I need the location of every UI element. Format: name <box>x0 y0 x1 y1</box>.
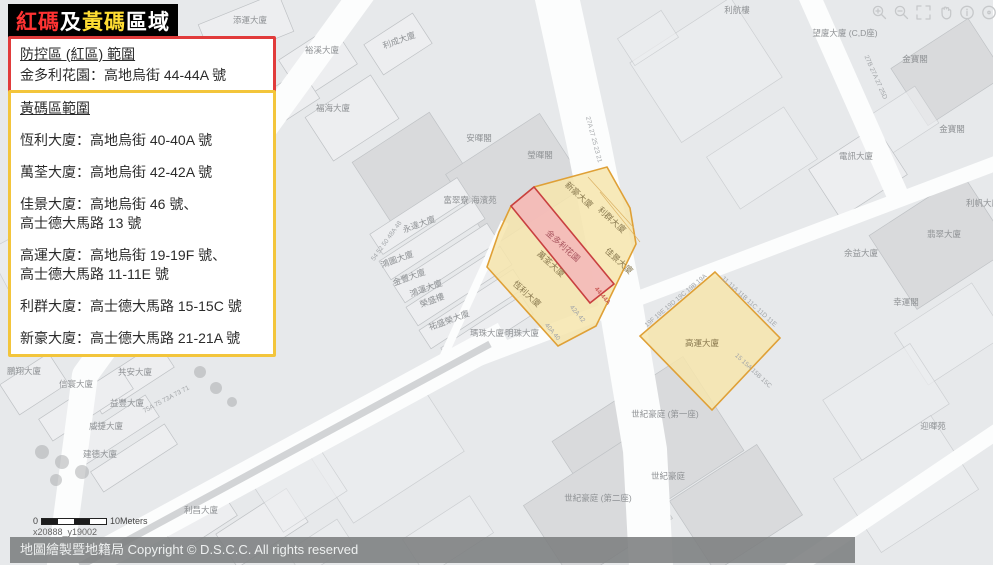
yellow-zone-legend: 黃碼區範圍 恆利大廈：高地烏街 40-40A 號萬荃大廈：高地烏街 42-42A… <box>8 90 276 357</box>
yellow-zone-entry: 佳景大廈：高地烏街 46 號、 高士德大馬路 13 號 <box>20 195 264 233</box>
map-label: 益豐大廈 <box>110 398 145 408</box>
zoom-out-icon <box>893 4 910 21</box>
map-label: 瑩暉閣 <box>527 150 553 160</box>
scale-segment <box>90 519 106 524</box>
bubble-icon <box>981 4 998 21</box>
map-label: 建德大廈 <box>83 449 118 459</box>
map-label: 利航樓 <box>724 5 750 15</box>
map-label: 幸運閣 <box>893 297 919 307</box>
zoom-in-icon <box>871 4 888 21</box>
map-label: 添運大廈 <box>233 15 268 25</box>
map-label: 世紀豪庭 <box>651 471 686 481</box>
pan-hand-icon <box>937 4 954 21</box>
map-label: 利昌大廈 <box>184 505 219 515</box>
red-zone-legend-heading: 防控區 (紅區) 範圍 <box>20 45 264 64</box>
map-label: 余益大廈 <box>844 248 879 258</box>
info-icon <box>959 4 976 21</box>
map-label: 翡翠大廈 <box>927 229 962 239</box>
yellow-zone-entry: 利群大廈：高士德大馬路 15-15C 號 <box>20 297 264 316</box>
map-label: 信寰大廈 <box>59 379 94 389</box>
scale-bar-segments <box>41 518 107 525</box>
title-segment-2: 黃碼 <box>82 11 126 34</box>
scale-segment <box>74 519 90 524</box>
scale-distance-label: 10Meters <box>110 516 148 526</box>
scale-segment <box>58 519 74 524</box>
yellow-zone-entry: 恆利大廈：高地烏街 40-40A 號 <box>20 131 264 150</box>
zoom-out-button[interactable] <box>892 4 911 23</box>
map-label: 高運大廈 <box>685 338 720 348</box>
map-label: 世紀豪庭 (第一座) <box>631 409 699 419</box>
red-zone-legend: 防控區 (紅區) 範圍 金多利花園：高地烏街 44-44A 號 <box>8 36 276 94</box>
yellow-zone-entry: 高運大廈：高地烏街 19-19F 號、 高士德大馬路 11-11E 號 <box>20 246 264 284</box>
map-label: 迎暉苑 <box>920 421 946 431</box>
title-segment-1: 及 <box>60 11 82 34</box>
map-label: 望廈大廈 (C,D座) <box>812 28 877 38</box>
right-margin <box>993 0 1000 565</box>
map-label: 威捷大廈 <box>89 421 124 431</box>
map-tree <box>194 366 206 378</box>
title-segment-0: 紅碼 <box>16 11 60 34</box>
map-label: 福海大廈 <box>316 103 351 113</box>
map-tree <box>50 474 62 486</box>
map-label: 鵬翔大廈 <box>7 366 42 376</box>
map-label: 富翠寮 海濱苑 <box>443 195 497 205</box>
map-tree <box>210 382 222 394</box>
map-toolbar <box>870 4 1000 23</box>
title-segment-3: 區域 <box>126 11 170 34</box>
map-label: 電訊大廈 <box>839 151 874 161</box>
scale-segment <box>42 519 58 524</box>
fullscreen-icon <box>915 4 932 21</box>
zoom-in-button[interactable] <box>870 4 889 23</box>
bubble-button[interactable] <box>980 4 999 23</box>
map-label: 世紀豪庭 (第二座) <box>564 493 632 503</box>
map-tree <box>35 445 49 459</box>
red-zone-legend-line: 金多利花園：高地烏街 44-44A 號 <box>20 66 264 85</box>
pan-hand-button[interactable] <box>936 4 955 23</box>
map-tree <box>227 397 237 407</box>
map-app-window: 添運大廈利成大廈裕溪大廈(第一,二,三期)福海大廈安暉閣瑩暉閣富翠寮 海濱苑永達… <box>0 0 1000 565</box>
copyright-bar: 地圖繪製暨地籍局 Copyright © D.S.C.C. All rights… <box>10 537 855 563</box>
map-label: 共安大廈 <box>118 367 153 377</box>
yellow-zone-legend-heading: 黃碼區範圍 <box>20 99 264 118</box>
map-label: 瑪珠大廈 <box>470 328 505 338</box>
map-tree <box>75 465 89 479</box>
yellow-zone-entry: 萬荃大廈：高地烏街 42-42A 號 <box>20 163 264 182</box>
map-label: 裕溪大廈 <box>305 45 340 55</box>
scale-bar: 0 10Meters <box>33 516 148 526</box>
map-tree <box>55 455 69 469</box>
map-label: 金寶閣 <box>902 54 928 64</box>
map-label: 安暉閣 <box>466 133 492 143</box>
yellow-zone-entry: 新豪大廈：高士德大馬路 21-21A 號 <box>20 329 264 348</box>
fullscreen-button[interactable] <box>914 4 933 23</box>
map-coordinates-label: x20888_y19002 <box>33 527 97 537</box>
page-title: 紅碼及黃碼區域 <box>8 4 178 39</box>
map-label: 金寶閣 <box>939 124 965 134</box>
scale-zero-label: 0 <box>33 516 38 526</box>
info-button[interactable] <box>958 4 977 23</box>
map-label: 明珠大廈 <box>505 328 540 338</box>
yellow-zone-legend-entries: 恆利大廈：高地烏街 40-40A 號萬荃大廈：高地烏街 42-42A 號佳景大廈… <box>20 131 264 348</box>
